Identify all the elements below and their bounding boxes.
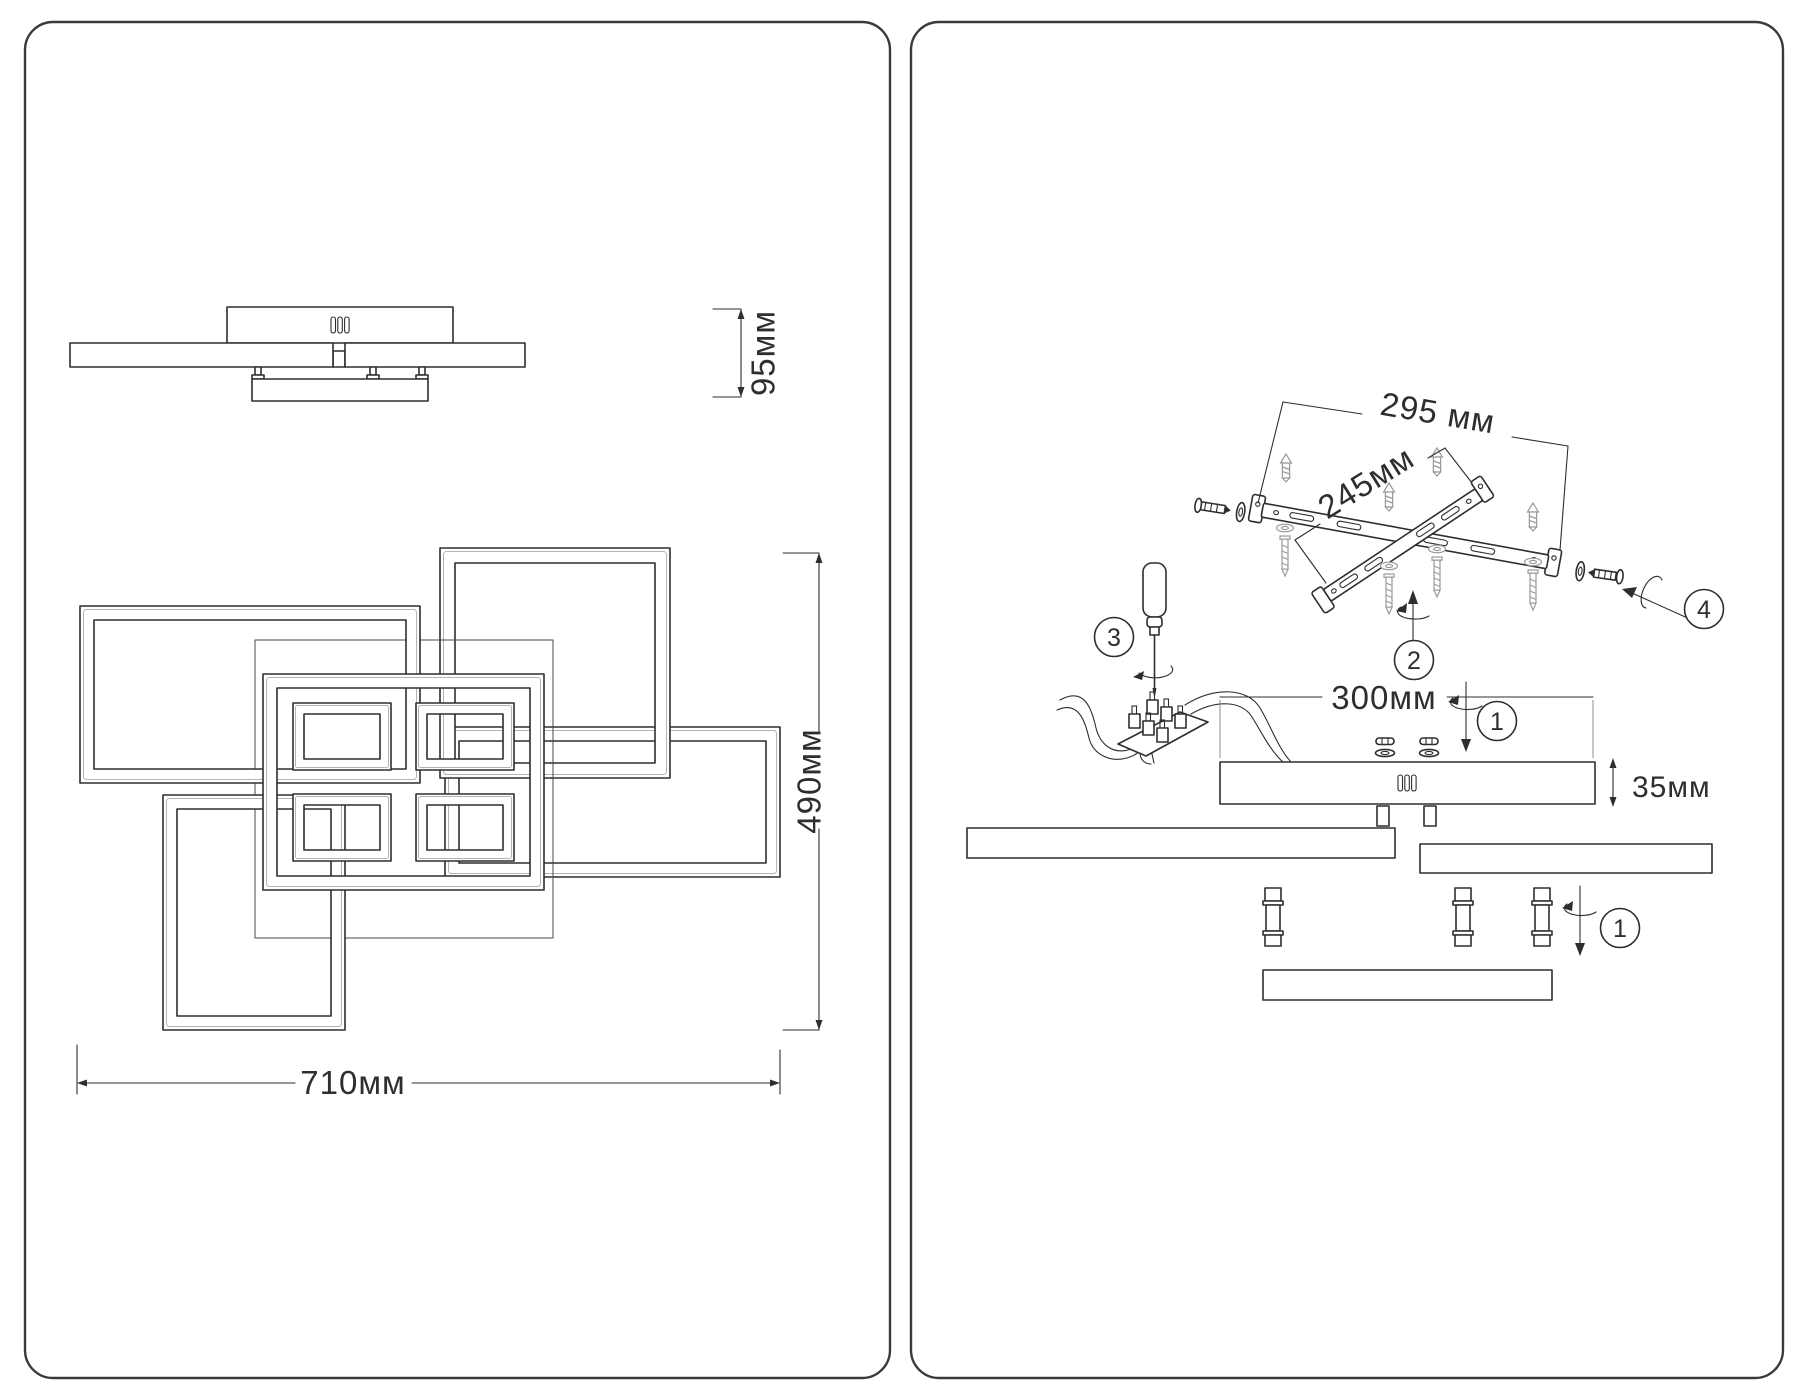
canopy-screw-pair	[1376, 738, 1439, 757]
center-window-br	[416, 794, 514, 861]
wall-plug-icon	[1528, 503, 1539, 531]
feet	[252, 367, 428, 379]
wall-plug-icon	[1281, 454, 1292, 482]
dim-490mm-label: 490мм	[791, 728, 828, 833]
plan-view	[80, 548, 780, 1030]
dim-710mm-label: 710мм	[300, 1064, 405, 1101]
arm-step	[333, 351, 345, 367]
screwdriver-icon	[1133, 563, 1173, 699]
side-screw-right	[1575, 561, 1624, 586]
step-4-number: 4	[1697, 596, 1711, 624]
step-1-number: 1	[1613, 915, 1627, 943]
screw-icon	[1432, 557, 1442, 597]
dim-300mm-label: 300мм	[1331, 679, 1436, 716]
arm-bar-right	[1420, 844, 1712, 873]
center-window-tl	[293, 703, 391, 770]
step-2-marker: 2	[1395, 590, 1434, 680]
washer-icon	[1277, 524, 1294, 532]
dim-95mm-label: 95мм	[745, 310, 782, 396]
right-arm-bar	[345, 343, 525, 367]
canopy-tab	[1424, 806, 1436, 826]
bottom-frame-bar	[1263, 970, 1552, 1000]
frame-top-left	[80, 606, 420, 783]
dim-295mm-label: 295 мм	[1378, 385, 1498, 441]
washer-icon	[1525, 558, 1542, 566]
left-panel-border	[25, 22, 890, 1378]
screw-icon	[1280, 536, 1290, 576]
dim-95mm: 95мм	[713, 309, 782, 397]
left-panel: 95мм	[25, 22, 890, 1378]
dim-35mm: 35мм	[1610, 758, 1711, 807]
washer-icon	[1429, 545, 1446, 553]
step-1-number: 1	[1490, 708, 1504, 736]
screw-icon	[1528, 570, 1538, 610]
dim-710mm: 710мм	[77, 1045, 780, 1101]
left-arm-bar	[70, 343, 333, 367]
step-3-number: 3	[1107, 624, 1121, 652]
step-1-lower-marker: 1	[1562, 886, 1640, 956]
canopy-tab	[1377, 806, 1389, 826]
side-screw-left	[1194, 495, 1247, 522]
canopy-box	[1220, 762, 1595, 804]
screw-icon	[1384, 574, 1394, 614]
frame-top-right	[440, 548, 670, 778]
dim-35mm-label: 35мм	[1632, 771, 1711, 804]
terminal-block	[1118, 692, 1208, 756]
step-2-number: 2	[1407, 647, 1421, 675]
side-view	[70, 307, 525, 401]
step-1-upper-marker: 1	[1448, 682, 1517, 752]
canopy-side	[227, 307, 453, 343]
frame-bottom-left	[163, 795, 345, 1030]
right-panel: 295 мм 245мм 2	[911, 22, 1783, 1378]
mounting-bracket	[1248, 476, 1562, 614]
arm-bar-left	[967, 828, 1395, 858]
washer-icon	[1381, 562, 1398, 570]
dim-300mm: 300мм	[1220, 679, 1593, 758]
dim-490mm: 490мм	[783, 553, 828, 1030]
instruction-sheet: 95мм	[0, 0, 1800, 1400]
step-4-marker: 4	[1622, 576, 1724, 628]
dim-245mm-label: 245мм	[1311, 439, 1420, 526]
standoff-post-icon	[1532, 888, 1552, 946]
drawing-canvas: 95мм	[0, 0, 1800, 1400]
bottom-frame-bar	[252, 379, 428, 401]
standoff-post-icon	[1453, 888, 1473, 946]
standoff-post-icon	[1263, 888, 1283, 946]
